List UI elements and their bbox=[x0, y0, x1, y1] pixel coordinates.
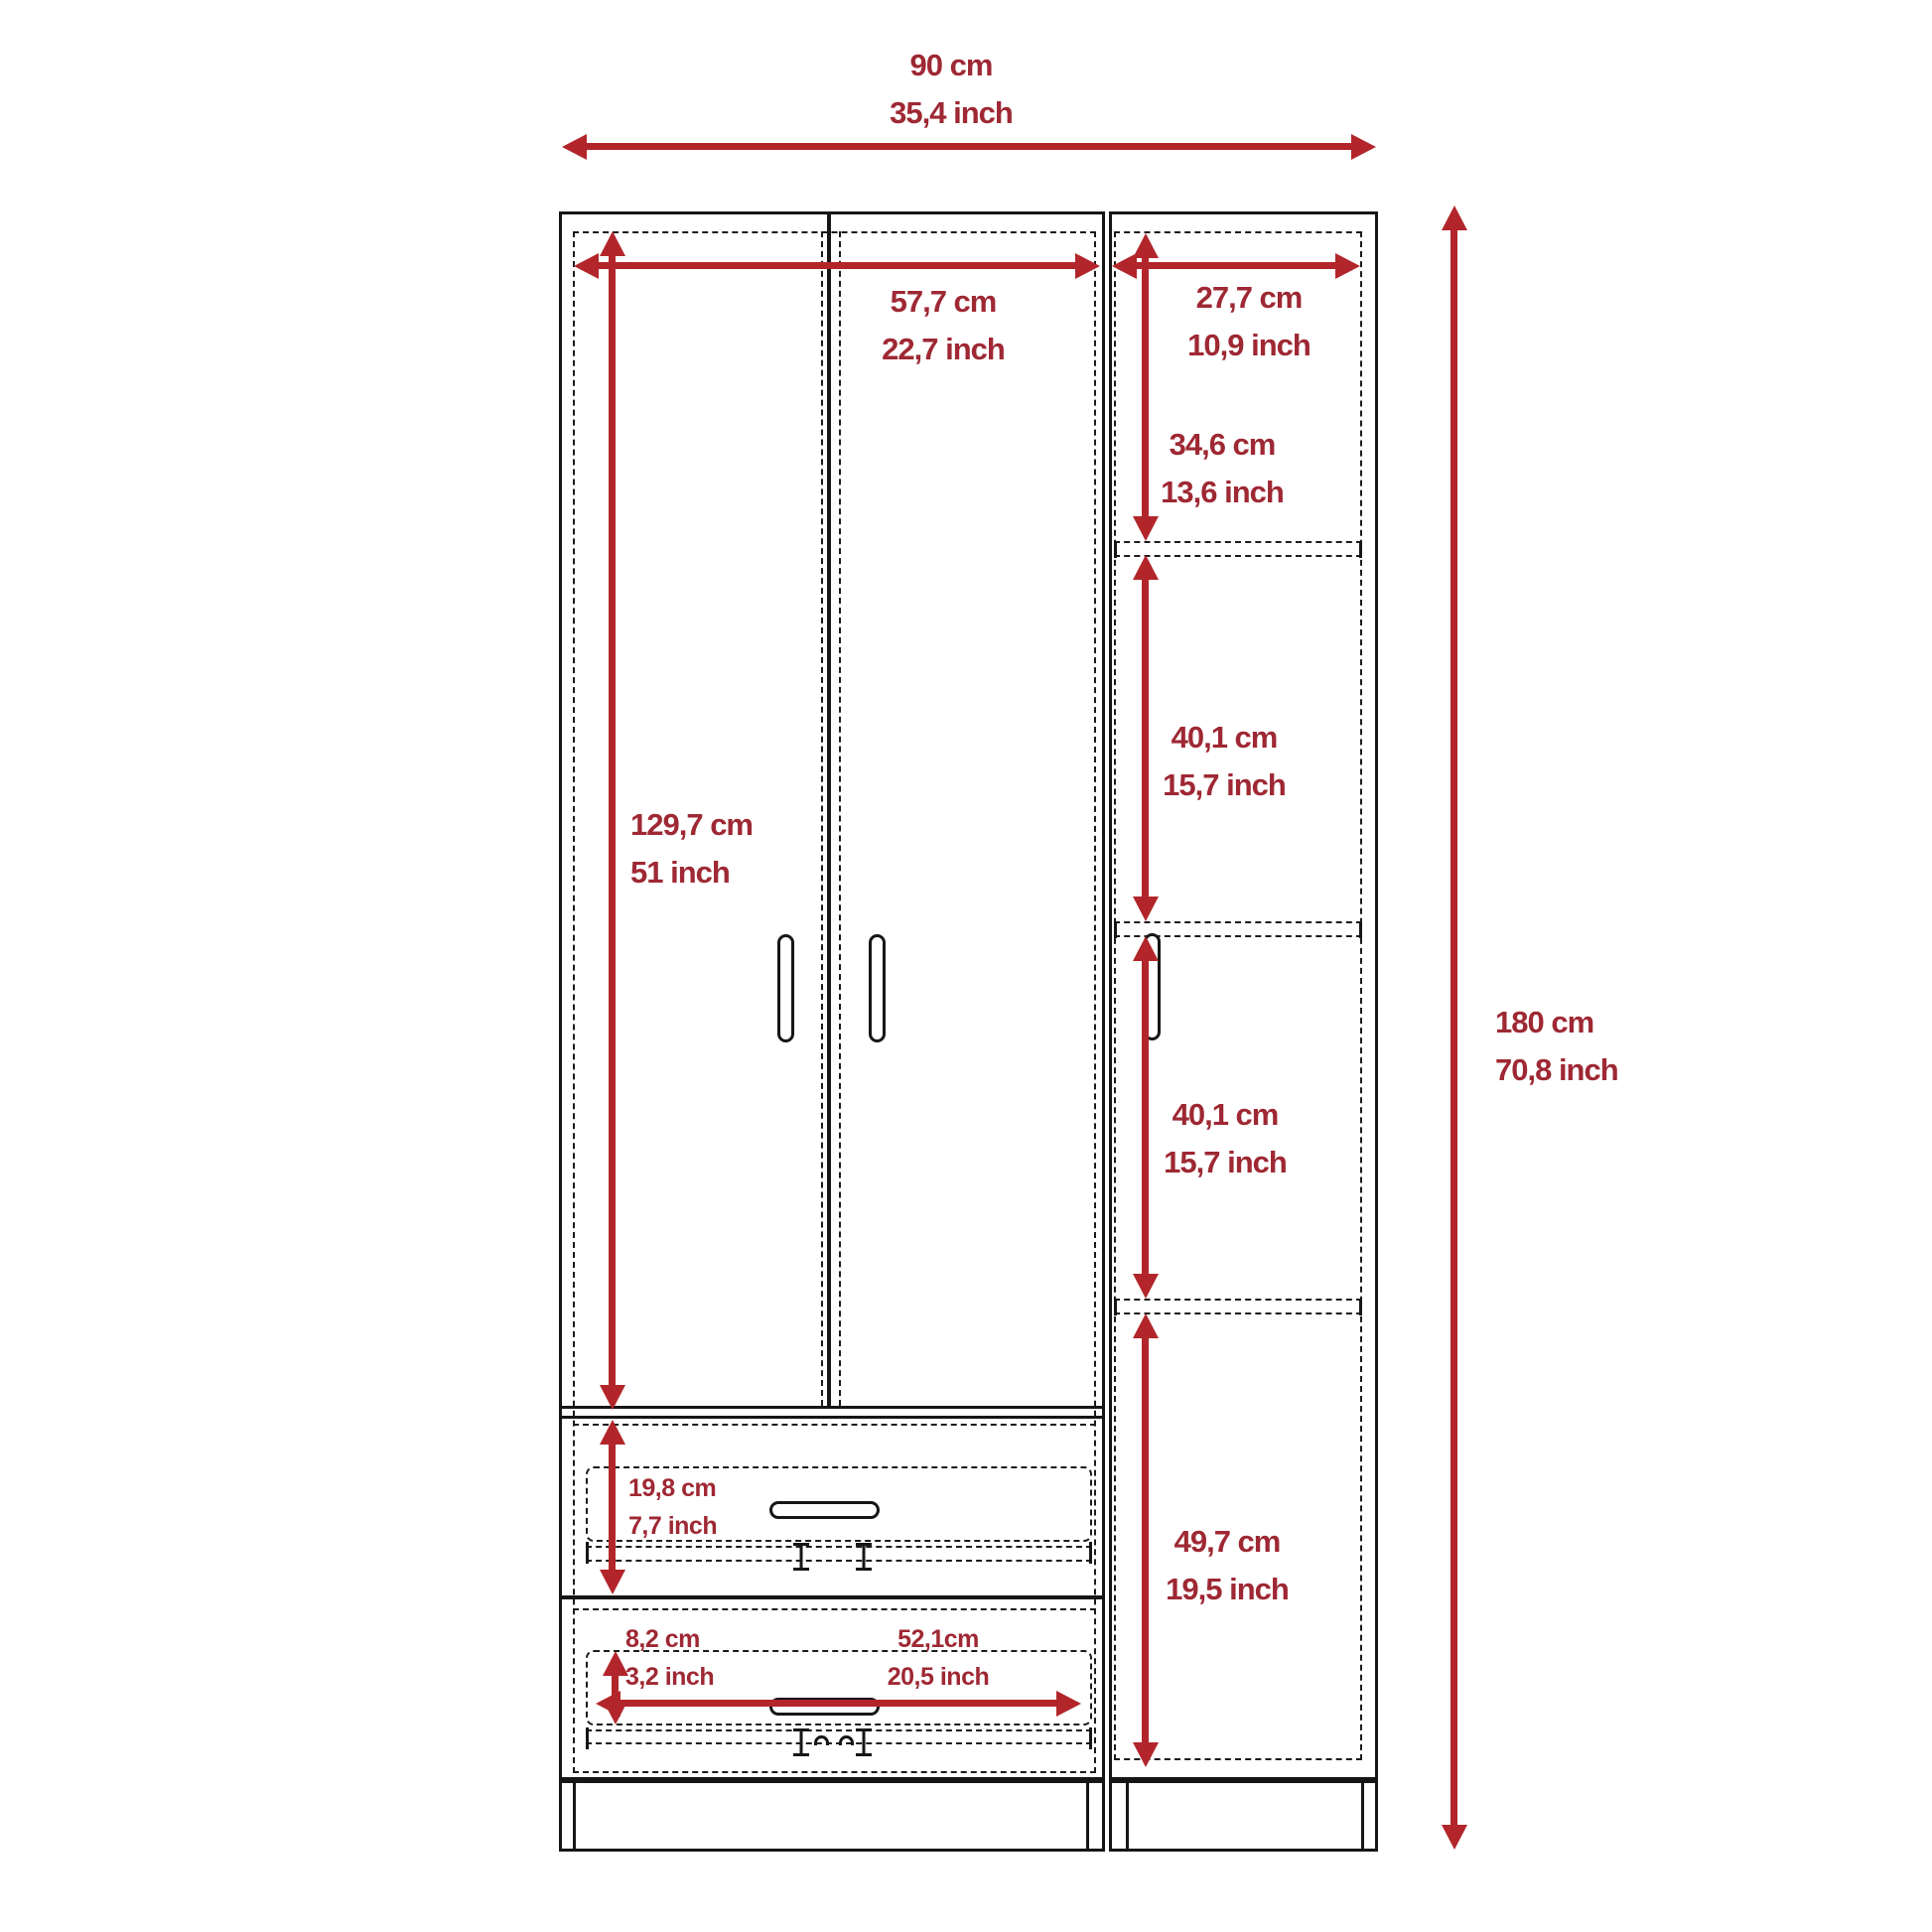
left-base-foot-line bbox=[573, 1783, 576, 1849]
dim-value-inch: 20,5 inch bbox=[888, 1658, 990, 1696]
shelf-end-cap bbox=[1359, 921, 1362, 938]
dim-label-drawer-width: 52,1cm 20,5 inch bbox=[888, 1620, 990, 1696]
dim-value-cm: 129,7 cm bbox=[630, 801, 753, 849]
dim-value-cm: 40,1 cm bbox=[1164, 1091, 1287, 1139]
dim-label-overall-width: 90 cm 35,4 inch bbox=[890, 42, 1013, 137]
door-bottom-line bbox=[562, 1406, 1102, 1409]
dim-value-cm: 49,7 cm bbox=[1166, 1518, 1289, 1566]
dim-value-inch: 35,4 inch bbox=[890, 89, 1013, 137]
door-divider-line bbox=[827, 214, 831, 1408]
dim-value-cm: 8,2 cm bbox=[625, 1620, 714, 1658]
dim-label-top-shelf: 34,6 cm 13,6 inch bbox=[1161, 421, 1284, 516]
dim-arrow-right-section-width bbox=[1112, 262, 1360, 269]
dim-value-cm: 19,8 cm bbox=[628, 1469, 717, 1507]
dim-label-door-height: 129,7 cm 51 inch bbox=[630, 801, 753, 897]
shelf-end-cap bbox=[1114, 541, 1117, 558]
shelf-end-cap bbox=[1359, 541, 1362, 558]
left-base-foot-line bbox=[1086, 1783, 1089, 1849]
dim-arrow-lower-middle-shelf bbox=[1142, 936, 1149, 1299]
dim-label-upper-middle-shelf: 40,1 cm 15,7 inch bbox=[1163, 714, 1286, 809]
drawer2-roller-mark bbox=[814, 1735, 829, 1745]
drawer-divider-line bbox=[562, 1595, 1102, 1599]
left-section-outline bbox=[559, 211, 1105, 1780]
shelf-dashed-line bbox=[1114, 541, 1362, 543]
drawer2-rail-end-cap bbox=[586, 1727, 589, 1749]
dim-value-inch: 22,7 inch bbox=[882, 326, 1005, 373]
right-base-plinth bbox=[1109, 1780, 1378, 1852]
left-section-left-dashed-line bbox=[573, 231, 575, 1773]
door-bottom-line bbox=[562, 1416, 1102, 1419]
dim-label-lower-middle-shelf: 40,1 cm 15,7 inch bbox=[1164, 1091, 1287, 1186]
door1-inner-dashed-line bbox=[821, 231, 823, 1406]
shelf-dashed-line bbox=[1114, 1299, 1362, 1301]
dim-arrow-top-drawer-height bbox=[609, 1420, 616, 1594]
dim-arrow-drawer-width bbox=[596, 1700, 1081, 1707]
dim-value-inch: 13,6 inch bbox=[1161, 469, 1284, 516]
dim-value-inch: 7,7 inch bbox=[628, 1507, 717, 1545]
dim-arrow-bottom-shelf bbox=[1142, 1313, 1149, 1767]
drawer2-rail-end-cap bbox=[1089, 1727, 1092, 1749]
dim-value-cm: 27,7 cm bbox=[1187, 274, 1311, 322]
dim-value-inch: 10,9 inch bbox=[1187, 322, 1311, 369]
dim-arrow-left-section-width bbox=[574, 262, 1100, 269]
dim-value-cm: 90 cm bbox=[890, 42, 1013, 89]
dim-arrow-upper-middle-shelf bbox=[1142, 555, 1149, 921]
door2-inner-dashed-line bbox=[839, 231, 841, 1406]
right-base-foot-line bbox=[1361, 1783, 1364, 1849]
shelf-end-cap bbox=[1114, 1299, 1117, 1315]
drawer2-slide-mark bbox=[793, 1728, 809, 1756]
dim-value-inch: 19,5 inch bbox=[1166, 1566, 1289, 1613]
middle-door-handle bbox=[869, 934, 886, 1042]
right-base-foot-line bbox=[1126, 1783, 1129, 1849]
dim-label-left-section-width: 57,7 cm 22,7 inch bbox=[882, 278, 1005, 373]
drawer1-slide-mark bbox=[856, 1543, 872, 1571]
dim-arrow-overall-width bbox=[562, 143, 1376, 150]
dim-value-cm: 52,1cm bbox=[888, 1620, 990, 1658]
shelf-dashed-line bbox=[1114, 921, 1362, 923]
drawer1-slide-mark bbox=[793, 1543, 809, 1571]
dim-value-inch: 51 inch bbox=[630, 849, 753, 897]
dim-arrow-overall-height bbox=[1450, 206, 1457, 1850]
drawer1-rail-end-cap bbox=[586, 1542, 589, 1564]
doors-bottom-dashed-line bbox=[573, 1424, 1096, 1426]
dim-value-cm: 180 cm bbox=[1495, 999, 1618, 1046]
drawer2-roller-mark bbox=[839, 1735, 854, 1745]
dim-value-inch: 3,2 inch bbox=[625, 1658, 714, 1696]
drawer2-rail-dashed-line bbox=[586, 1729, 1092, 1731]
dim-label-overall-height: 180 cm 70,8 inch bbox=[1495, 999, 1618, 1094]
shelf-end-cap bbox=[1359, 1299, 1362, 1315]
dim-label-bottom-drawer: 8,2 cm 3,2 inch bbox=[625, 1620, 714, 1696]
drawer1-rail-end-cap bbox=[1089, 1542, 1092, 1564]
dim-value-inch: 15,7 inch bbox=[1164, 1139, 1287, 1186]
drawer2-slide-mark bbox=[856, 1728, 872, 1756]
drawer1-rail-dashed-line bbox=[586, 1546, 1092, 1548]
left-base-plinth bbox=[559, 1780, 1105, 1852]
left-door-handle bbox=[777, 934, 794, 1042]
drawer1-handle bbox=[769, 1501, 880, 1519]
drawers-bottom-dashed-line bbox=[573, 1771, 1096, 1773]
dim-label-right-section-width: 27,7 cm 10,9 inch bbox=[1187, 274, 1311, 369]
dim-value-cm: 40,1 cm bbox=[1163, 714, 1286, 761]
shelf-end-cap bbox=[1114, 921, 1117, 938]
dim-value-inch: 70,8 inch bbox=[1495, 1046, 1618, 1094]
left-section-top-dashed-line bbox=[573, 231, 1096, 233]
dim-label-bottom-shelf: 49,7 cm 19,5 inch bbox=[1166, 1518, 1289, 1613]
dim-value-cm: 34,6 cm bbox=[1161, 421, 1284, 469]
dim-arrow-door-height bbox=[609, 231, 616, 1410]
drawer2-top-dashed-line bbox=[573, 1608, 1096, 1610]
left-section-right-dashed-line bbox=[1094, 231, 1096, 1773]
wardrobe-dimension-diagram: 90 cm 35,4 inch 57,7 cm 22,7 inch 27,7 c… bbox=[0, 0, 1932, 1932]
drawer1-rail-dashed-line bbox=[586, 1560, 1092, 1562]
dim-arrow-top-shelf bbox=[1142, 233, 1149, 541]
dim-value-inch: 15,7 inch bbox=[1163, 761, 1286, 809]
dim-label-top-drawer: 19,8 cm 7,7 inch bbox=[628, 1469, 717, 1545]
dim-value-cm: 57,7 cm bbox=[882, 278, 1005, 326]
